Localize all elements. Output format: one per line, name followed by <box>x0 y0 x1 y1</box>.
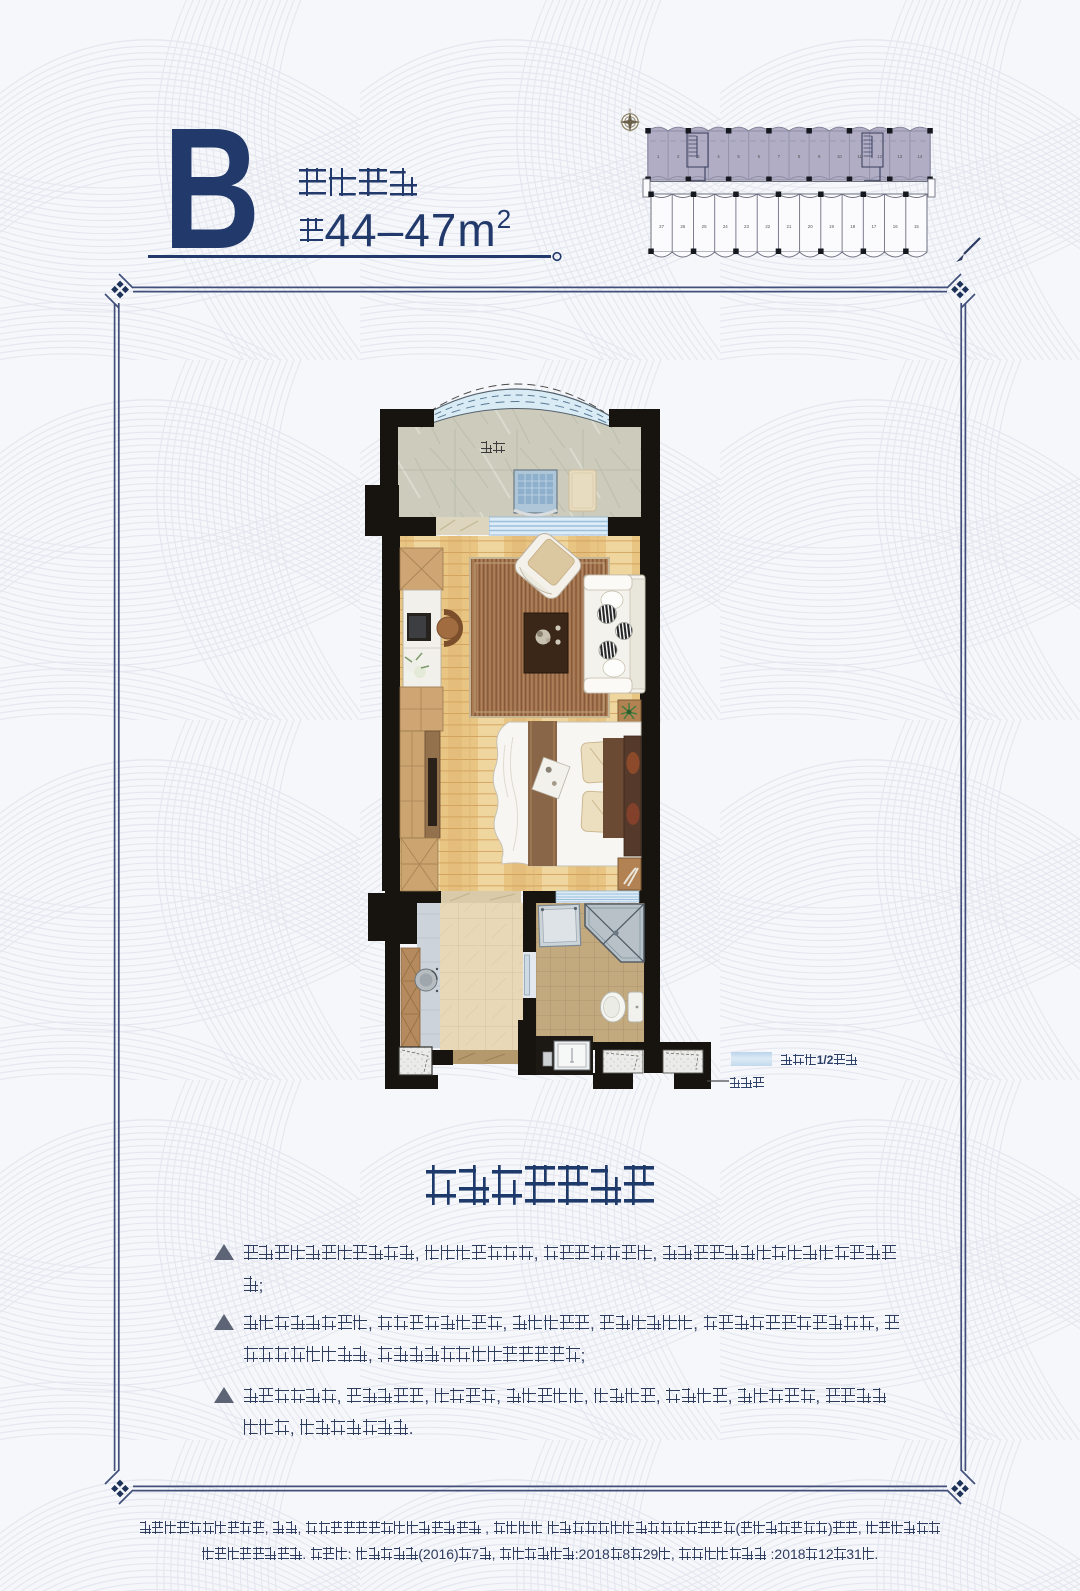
svg-text:13: 13 <box>897 154 902 159</box>
svg-text:11: 11 <box>857 154 862 159</box>
svg-text:25: 25 <box>702 224 707 229</box>
svg-text:20: 20 <box>808 224 813 229</box>
svg-text:24: 24 <box>723 224 728 229</box>
svg-text:17: 17 <box>871 224 876 229</box>
svg-text:22: 22 <box>765 224 770 229</box>
svg-text:16: 16 <box>893 224 898 229</box>
svg-text:10: 10 <box>837 154 842 159</box>
svg-text:14: 14 <box>917 154 922 159</box>
svg-text:12: 12 <box>877 154 882 159</box>
svg-text:19: 19 <box>829 224 834 229</box>
svg-text:23: 23 <box>744 224 749 229</box>
svg-text:27: 27 <box>659 224 664 229</box>
svg-text:21: 21 <box>787 224 792 229</box>
svg-text:26: 26 <box>680 224 685 229</box>
svg-text:18: 18 <box>850 224 855 229</box>
svg-text:15: 15 <box>914 224 919 229</box>
